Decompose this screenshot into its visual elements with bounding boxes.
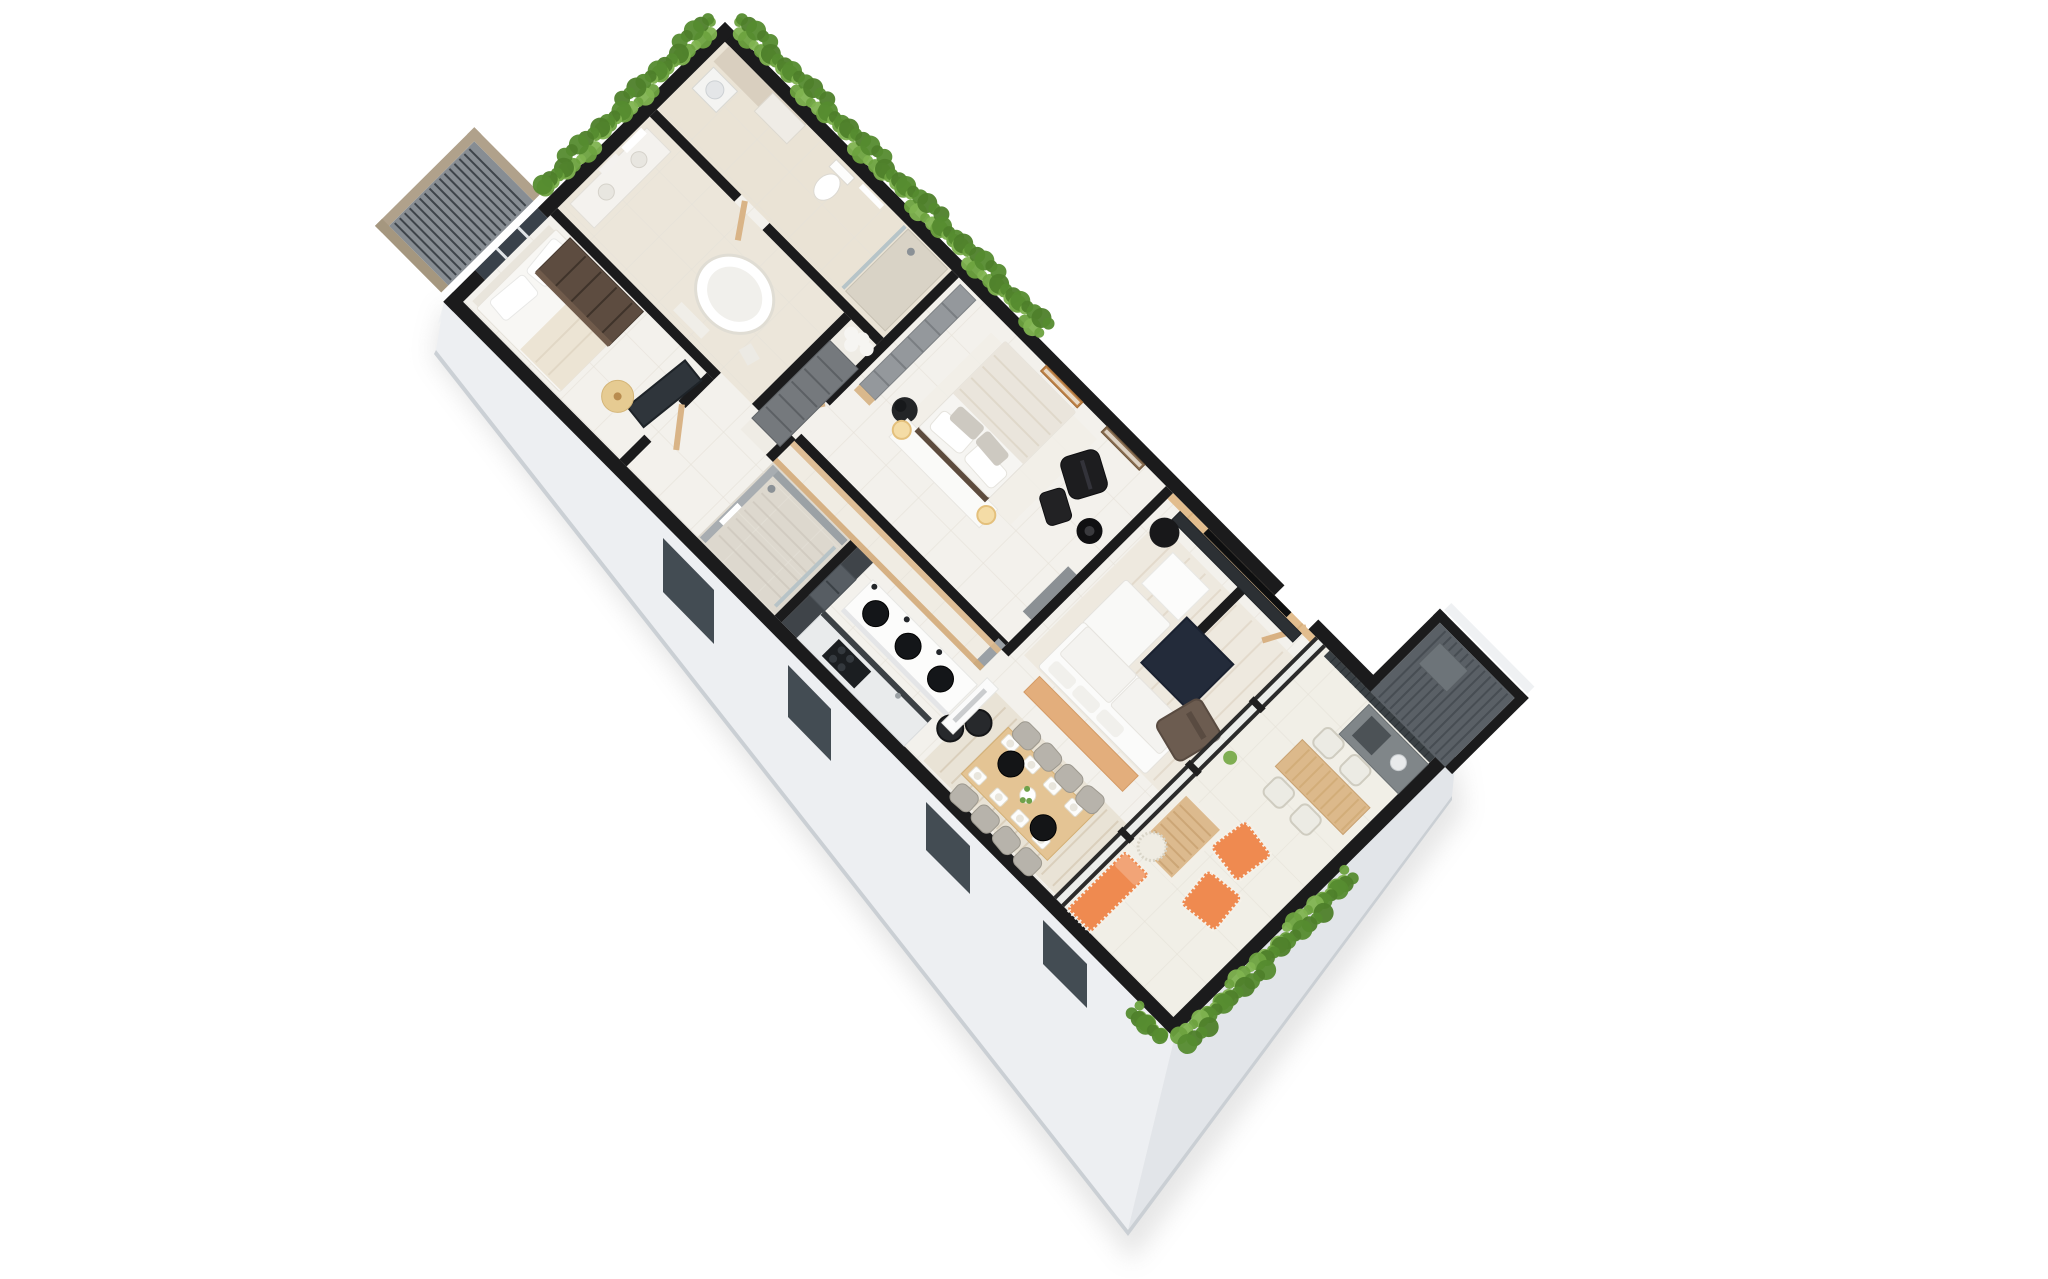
floor-plan-stage bbox=[0, 0, 2048, 1279]
floor-plan-render bbox=[0, 0, 2048, 1279]
